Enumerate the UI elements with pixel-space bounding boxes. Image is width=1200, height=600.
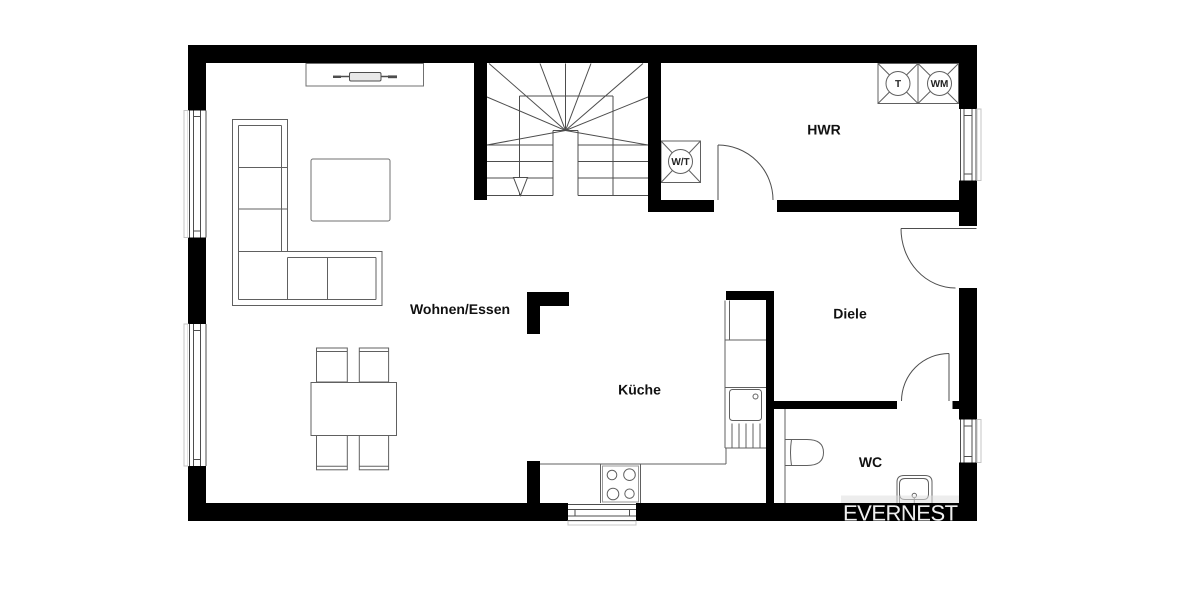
svg-text:T: T (895, 79, 901, 90)
svg-text:HWR: HWR (807, 122, 840, 138)
svg-text:WM: WM (931, 79, 949, 90)
svg-text:EVERNEST: EVERNEST (843, 501, 958, 526)
svg-text:Diele: Diele (833, 306, 867, 322)
svg-text:Wohnen/Essen: Wohnen/Essen (410, 301, 510, 317)
svg-text:W/T: W/T (671, 157, 689, 168)
svg-text:WC: WC (859, 454, 882, 470)
svg-text:Küche: Küche (618, 382, 661, 398)
